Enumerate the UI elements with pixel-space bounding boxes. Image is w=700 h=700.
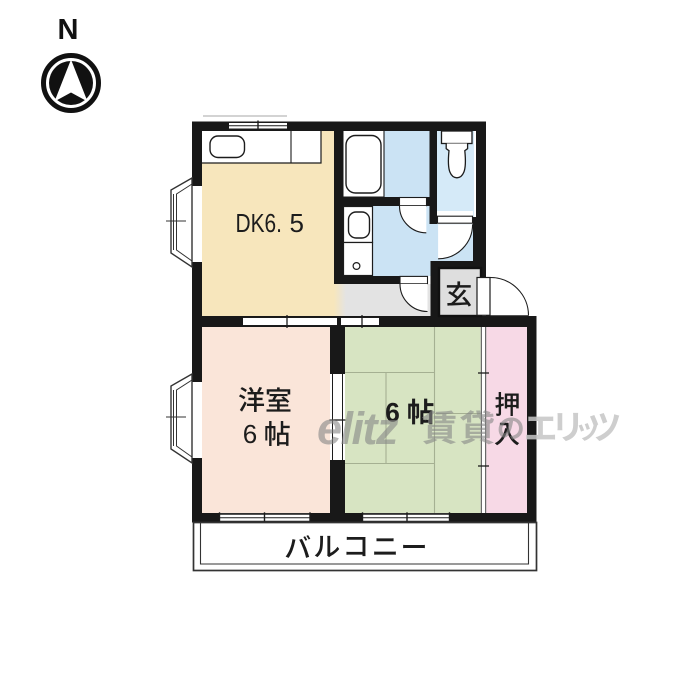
- svg-text:DK6.: DK6.: [236, 208, 283, 238]
- svg-text:N: N: [58, 14, 79, 46]
- svg-text:elitz: elitz: [317, 403, 399, 454]
- svg-text:6: 6: [243, 419, 257, 449]
- svg-text:5: 5: [290, 208, 304, 238]
